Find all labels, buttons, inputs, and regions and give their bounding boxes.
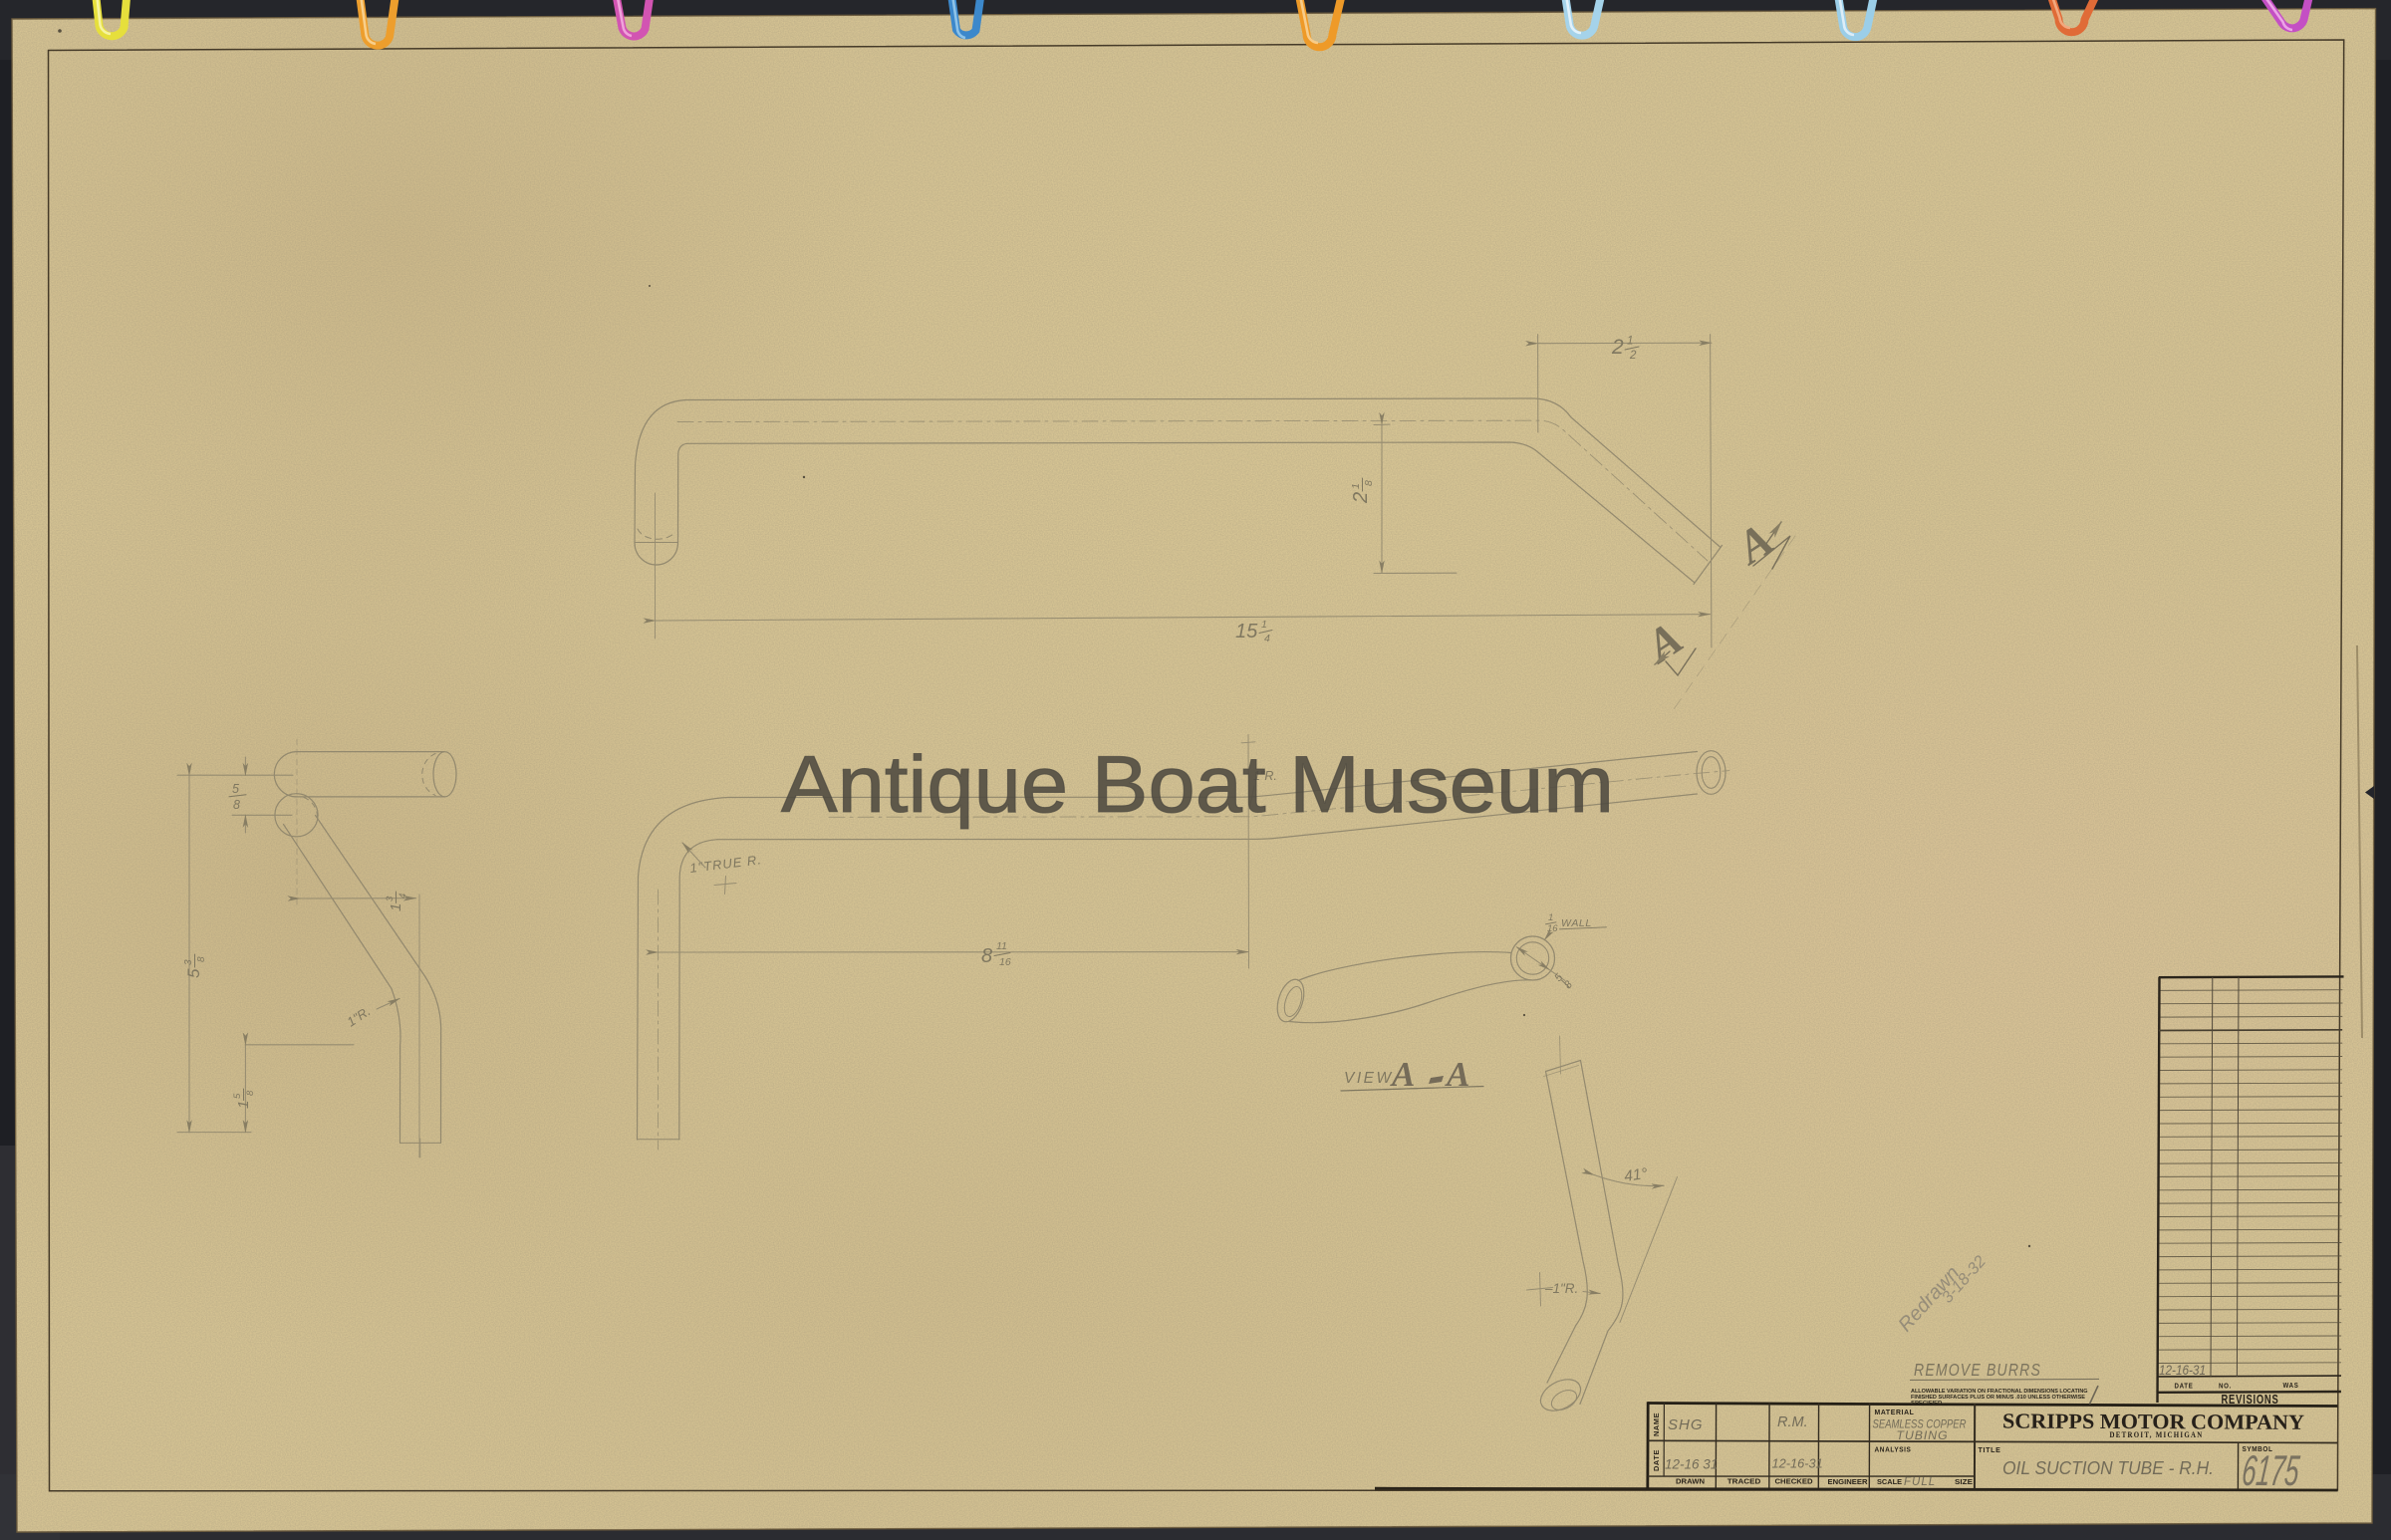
svg-text:1: 1: [1627, 336, 1633, 348]
svg-text:ENGINEER: ENGINEER: [1828, 1477, 1869, 1486]
svg-text:1: 1: [235, 1101, 252, 1109]
svg-text:VIEW: VIEW: [1344, 1070, 1394, 1087]
svg-text:REMOVE BURRS: REMOVE BURRS: [1914, 1360, 2041, 1380]
svg-text:4: 4: [398, 894, 408, 898]
svg-text:8: 8: [981, 945, 992, 967]
svg-text:TUBING: TUBING: [1897, 1428, 1949, 1442]
svg-text:8: 8: [233, 798, 240, 812]
svg-text:11: 11: [996, 940, 1007, 952]
svg-text:1: 1: [1548, 912, 1553, 923]
svg-text:SPECIFIED.: SPECIFIED.: [1911, 1401, 1944, 1407]
svg-text:3: 3: [385, 896, 396, 901]
svg-text:2: 2: [1350, 492, 1372, 504]
svg-text:DATE: DATE: [1652, 1449, 1661, 1471]
svg-text:5: 5: [184, 968, 203, 978]
svg-text:SHG: SHG: [1668, 1416, 1704, 1433]
svg-text:SCALE: SCALE: [1877, 1477, 1902, 1486]
svg-text:NAME: NAME: [1652, 1412, 1661, 1436]
svg-text:DATE: DATE: [2175, 1382, 2194, 1391]
svg-text:1: 1: [1261, 619, 1267, 631]
svg-text:SIZE: SIZE: [1955, 1477, 1973, 1486]
svg-text:3: 3: [183, 959, 194, 965]
svg-text:A: A: [1390, 1055, 1415, 1094]
svg-text:CHECKED: CHECKED: [1775, 1477, 1814, 1486]
svg-text:DETROIT, MICHIGAN: DETROIT, MICHIGAN: [2110, 1430, 2204, 1439]
svg-text:5: 5: [232, 1093, 243, 1099]
svg-text:41°: 41°: [1623, 1165, 1649, 1185]
svg-text:ANALYSIS: ANALYSIS: [1875, 1445, 1912, 1454]
svg-text:1: 1: [1350, 483, 1362, 489]
svg-text:6175: 6175: [2240, 1447, 2302, 1495]
svg-text:8: 8: [196, 956, 207, 962]
svg-text:2: 2: [1629, 350, 1637, 362]
svg-text:1: 1: [388, 903, 404, 911]
svg-text:MATERIAL: MATERIAL: [1875, 1408, 1915, 1416]
svg-text:5: 5: [232, 782, 239, 796]
svg-text:R.M.: R.M.: [1777, 1414, 1808, 1430]
svg-text:8: 8: [245, 1090, 256, 1096]
svg-text:12-16-31: 12-16-31: [1772, 1456, 1823, 1471]
svg-text:OIL SUCTION TUBE - R.H.: OIL SUCTION TUBE - R.H.: [2002, 1457, 2214, 1478]
svg-text:DRAWN: DRAWN: [1676, 1477, 1705, 1486]
svg-text:TRACED: TRACED: [1727, 1477, 1761, 1486]
svg-text:NO.: NO.: [2219, 1381, 2232, 1390]
svg-text:4: 4: [1264, 633, 1270, 644]
svg-text:2: 2: [1611, 336, 1624, 359]
svg-text:–1"R.: –1"R.: [1544, 1281, 1578, 1296]
svg-text:16: 16: [1547, 923, 1558, 934]
svg-text:FULL: FULL: [1904, 1476, 1936, 1488]
svg-text:16: 16: [999, 956, 1011, 968]
svg-text:8: 8: [1363, 480, 1375, 486]
svg-text:WAS: WAS: [2283, 1381, 2299, 1390]
svg-text:Antique Boat Museum: Antique Boat Museum: [781, 740, 1614, 830]
svg-text:TITLE: TITLE: [1979, 1445, 2001, 1454]
svg-text:12-16-31: 12-16-31: [2159, 1363, 2206, 1378]
svg-text:12-16 31: 12-16 31: [1665, 1457, 1718, 1472]
svg-text:15: 15: [1235, 621, 1258, 642]
